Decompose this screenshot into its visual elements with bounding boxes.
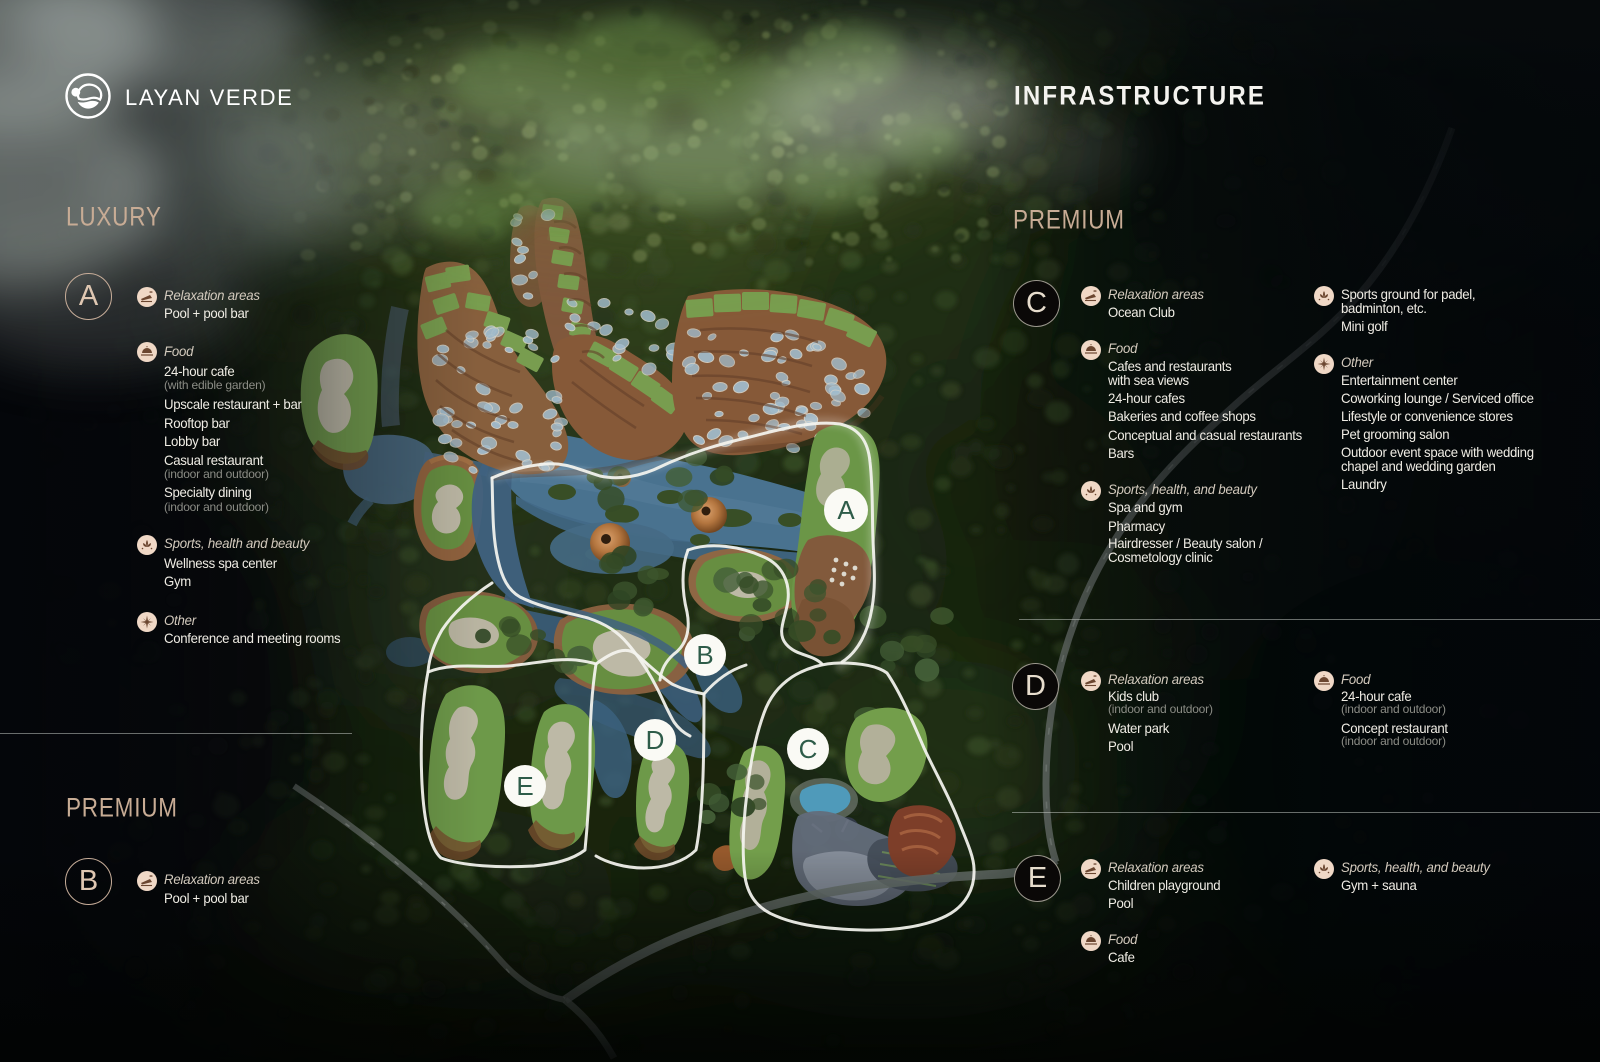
svg-text:E: E xyxy=(516,771,533,801)
svg-text:D: D xyxy=(646,725,665,755)
svg-text:B: B xyxy=(696,640,713,670)
svg-text:C: C xyxy=(799,734,818,764)
svg-text:A: A xyxy=(837,495,855,525)
